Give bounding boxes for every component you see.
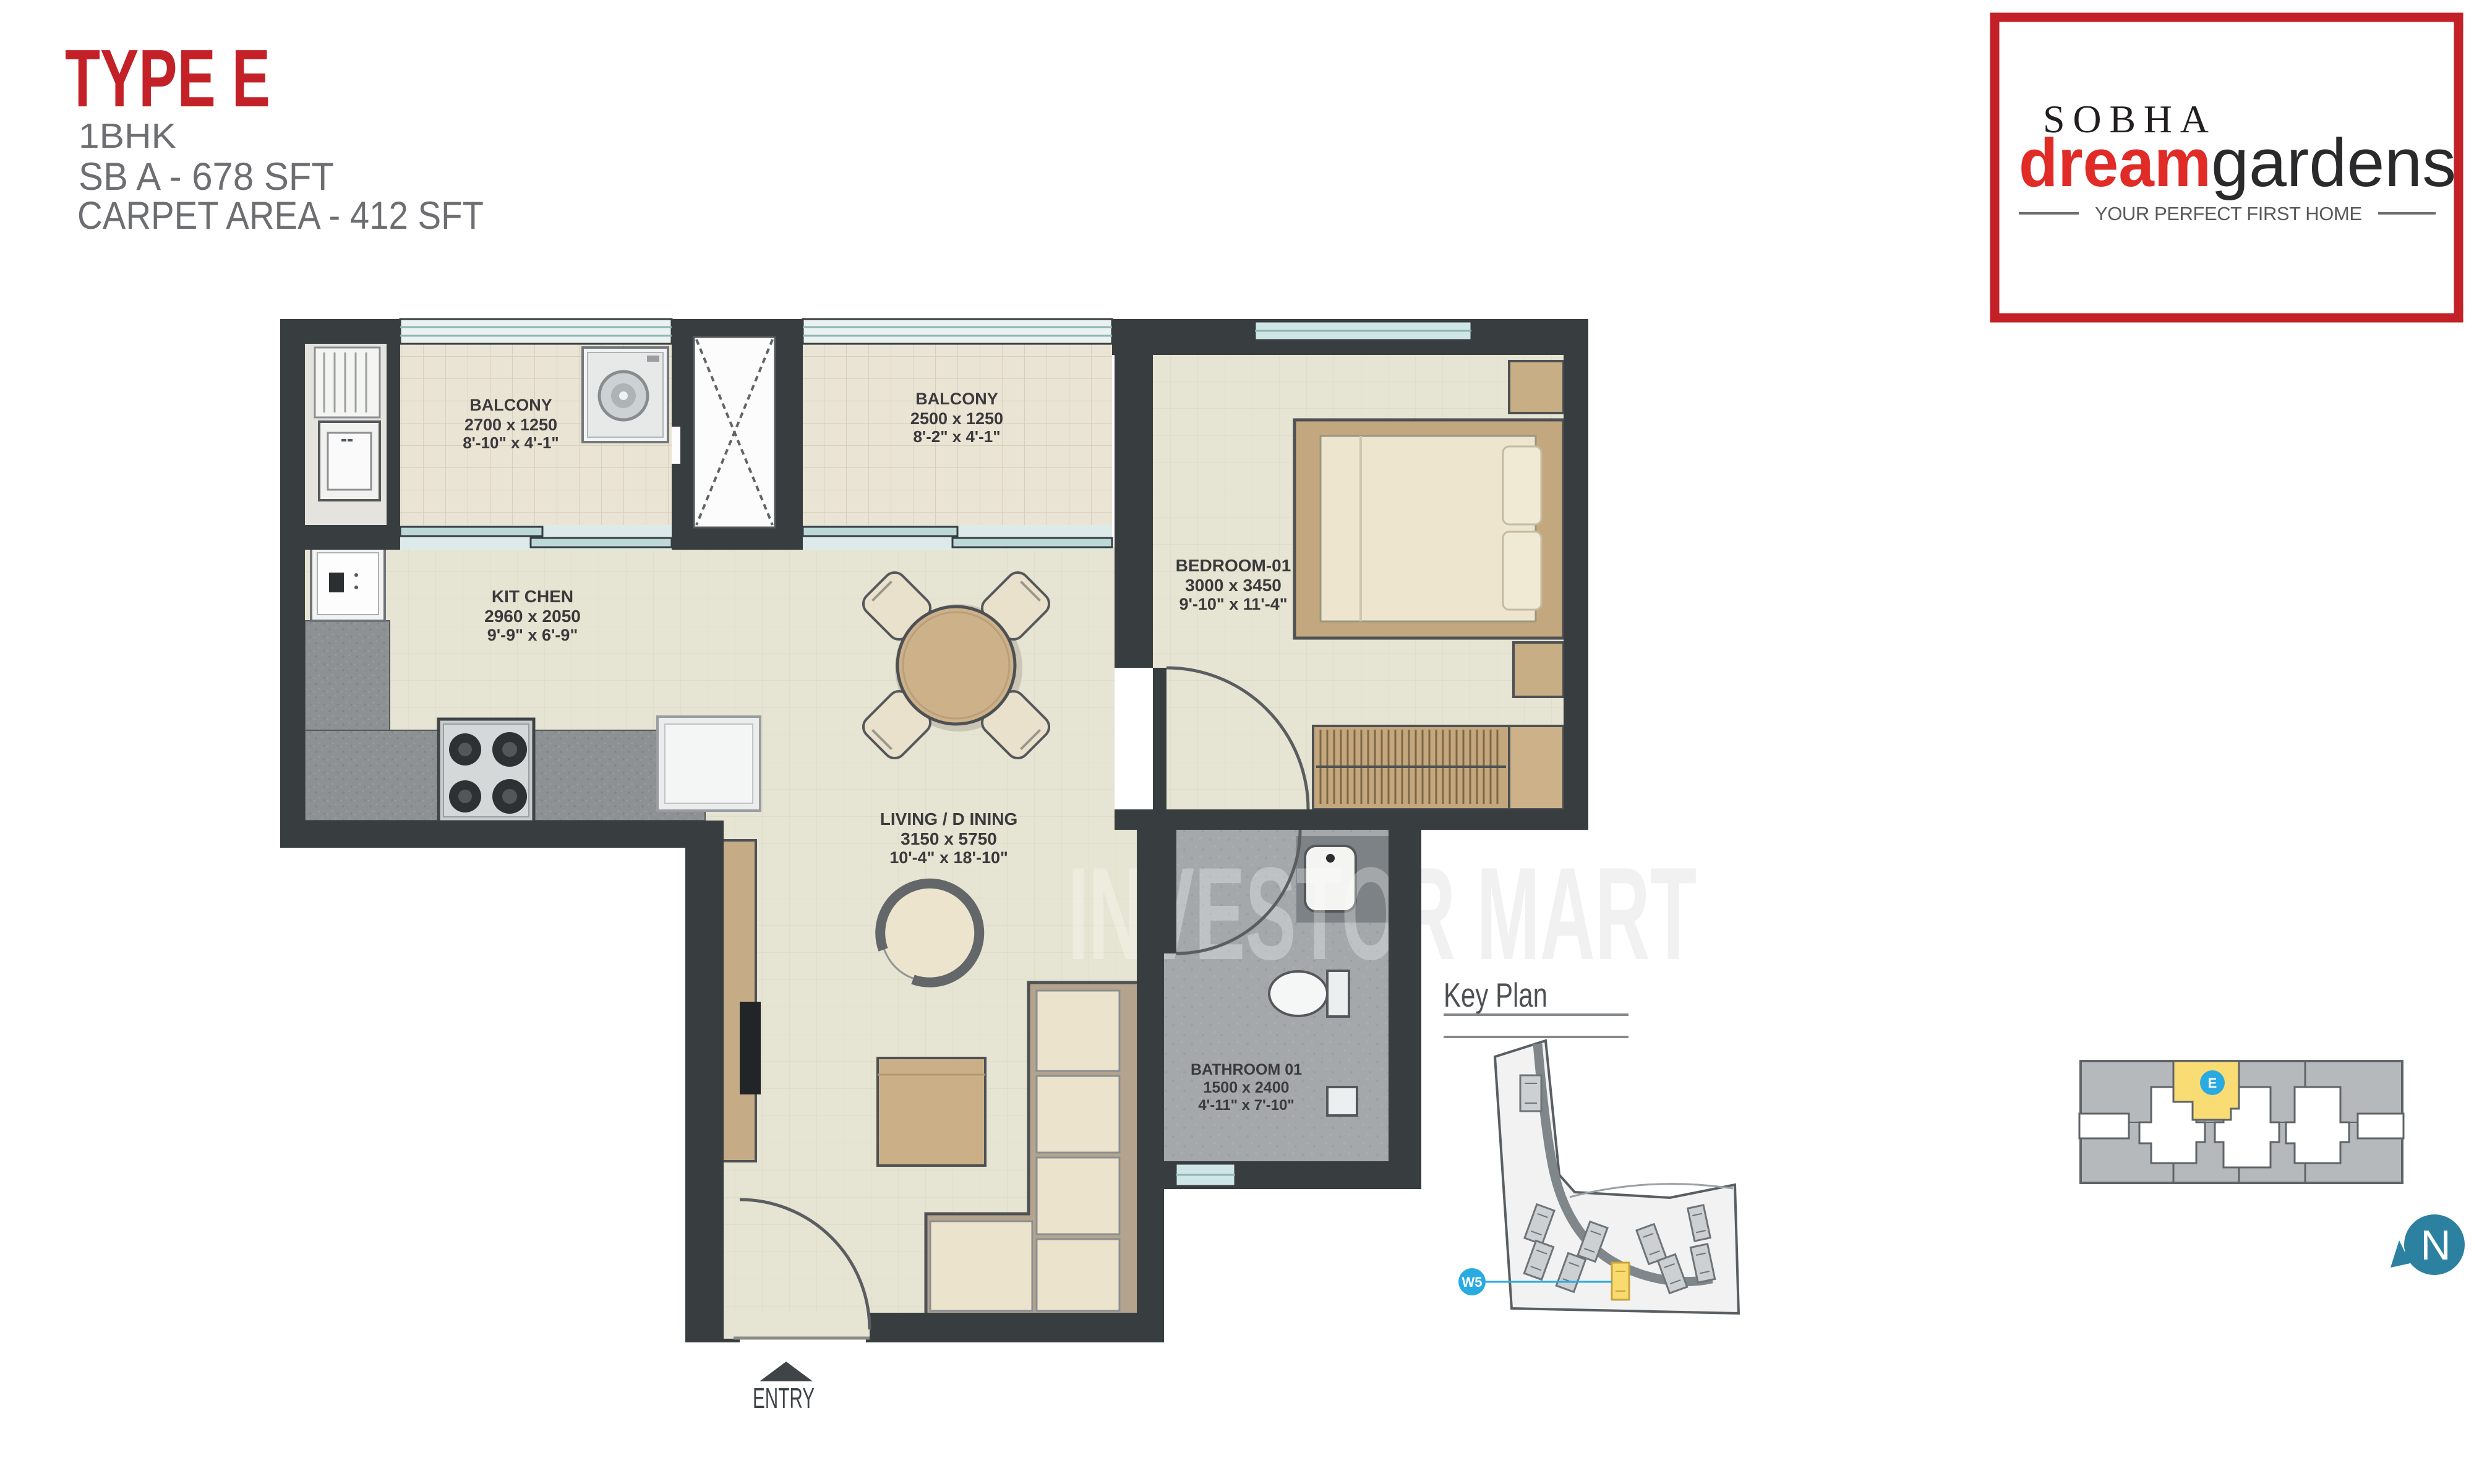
svg-text:BEDROOM-01: BEDROOM-01 <box>1176 556 1291 575</box>
svg-text:TYPE E: TYPE E <box>65 33 270 124</box>
svg-text:8'-2" x 4'-1": 8'-2" x 4'-1" <box>913 427 1000 446</box>
svg-text:E: E <box>2208 1075 2217 1091</box>
svg-text:CARPET AREA - 412 SFT: CARPET AREA - 412 SFT <box>77 194 484 237</box>
svg-text:gardens: gardens <box>2211 125 2456 201</box>
svg-text:dream: dream <box>2019 125 2211 201</box>
svg-text:2700 x 1250: 2700 x 1250 <box>464 416 557 434</box>
svg-text:8'-10" x 4'-1": 8'-10" x 4'-1" <box>463 433 559 452</box>
svg-text:BALCONY: BALCONY <box>915 390 998 408</box>
svg-text:W5: W5 <box>1462 1274 1483 1290</box>
svg-text:3000 x 3450: 3000 x 3450 <box>1185 576 1282 595</box>
svg-text:KIT CHEN: KIT CHEN <box>492 587 573 606</box>
svg-text:YOUR PERFECT FIRST HOME: YOUR PERFECT FIRST HOME <box>2095 203 2362 224</box>
svg-text:2960 x 2050: 2960 x 2050 <box>484 607 581 626</box>
svg-text:2500 x 1250: 2500 x 1250 <box>910 409 1003 428</box>
svg-text:SB A - 678 SFT: SB A - 678 SFT <box>79 155 334 198</box>
svg-text:1500 x 2400: 1500 x 2400 <box>1203 1079 1289 1096</box>
svg-text:9'-10" x 11'-4": 9'-10" x 11'-4" <box>1179 595 1287 613</box>
svg-text:BATHROOM 01: BATHROOM 01 <box>1191 1061 1302 1078</box>
svg-text:4'-11" x 7'-10": 4'-11" x 7'-10" <box>1198 1097 1295 1114</box>
svg-text:10'-4" x 18'-10": 10'-4" x 18'-10" <box>889 848 1008 867</box>
svg-text:ENTRY: ENTRY <box>753 1382 815 1414</box>
svg-text:Key Plan: Key Plan <box>1444 976 1547 1014</box>
svg-text:3150 x 5750: 3150 x 5750 <box>901 829 997 848</box>
svg-text:LIVING / D INING: LIVING / D INING <box>880 809 1017 829</box>
svg-text:N: N <box>2420 1222 2450 1269</box>
svg-text:9'-9" x 6'-9": 9'-9" x 6'-9" <box>487 626 578 644</box>
svg-text:1BHK: 1BHK <box>79 116 176 156</box>
svg-text:BALCONY: BALCONY <box>469 396 552 414</box>
